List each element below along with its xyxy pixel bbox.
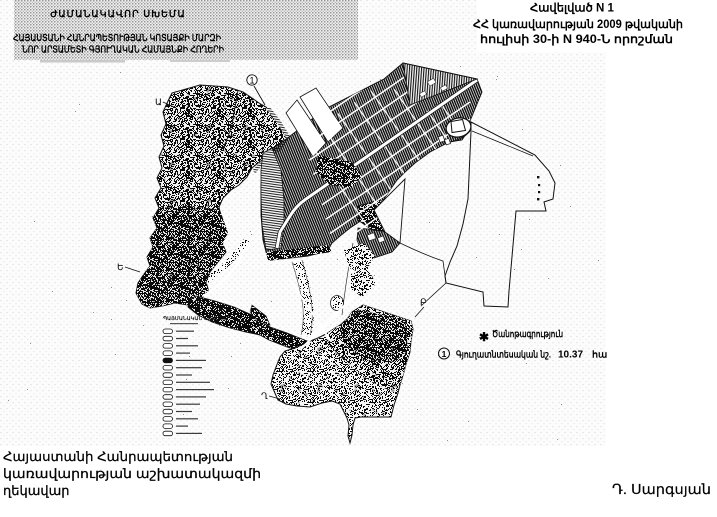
svg-text:հա: հա (592, 349, 608, 361)
svg-text:ղեկավար: ղեկավար (3, 483, 70, 498)
svg-text:Հայաստանի Հանրապետության: Հայաստանի Հանրապետության (3, 449, 233, 464)
svg-text:10.37: 10.37 (558, 350, 583, 361)
svg-text:Ծանոթագրություն: Ծանոթագրություն (492, 329, 563, 340)
svg-text:1: 1 (249, 76, 254, 86)
svg-text:Ե: Ե (117, 262, 124, 272)
svg-text:Բ: Բ (420, 297, 427, 307)
svg-text:ՀԱՅԱՍՏԱՆԻ ՀԱՆՐԱՊԵՏՈՒԹՅԱՆ ԿՈՏԱՅ: ՀԱՅԱՍՏԱՆԻ ՀԱՆՐԱՊԵՏՈՒԹՅԱՆ ԿՈՏԱՅՔԻ ՄԱՐԶԻ (13, 33, 221, 44)
svg-text:ԺԱՄԱՆԱԿԱՎՈՐ ՍԽԵՄԱ: ԺԱՄԱՆԱԿԱՎՈՐ ՍԽԵՄԱ (50, 9, 185, 20)
svg-text:ՀՀ կառավարության 2009 թվականի: ՀՀ կառավարության 2009 թվականի (473, 18, 683, 31)
svg-text:Ղ: Ղ (261, 391, 268, 401)
svg-text:հուլիսի 30-ի N 940-Ն որոշման: հուլիսի 30-ի N 940-Ն որոշման (480, 32, 673, 46)
svg-text:Ա: Ա (155, 97, 162, 107)
svg-text:1: 1 (442, 349, 447, 359)
svg-text:ՆՈՐ ԱՐՏԱՄԵՏԻ ԳՅՈՒՂԱԿԱՆ ՀԱՄԱՅՆՔ: ՆՈՐ ԱՐՏԱՄԵՏԻ ԳՅՈՒՂԱԿԱՆ ՀԱՄԱՅՆՔԻ ՀՈՂԵՐԻ (21, 45, 224, 56)
svg-text:Դ. Սարգսյան: Դ. Սարգսյան (612, 481, 711, 497)
svg-text:ՊԱՅՄԱՆԱԿԱՆ ՆՇԱՆՆԵՐ: ՊԱՅՄԱՆԱԿԱՆ ՆՇԱՆՆԵՐ (163, 316, 231, 322)
svg-text:Հավելված N 1: Հավելված N 1 (530, 2, 614, 15)
svg-text:✱: ✱ (479, 330, 489, 344)
svg-text:Գյուղատնտեսական նշ.: Գյուղատնտեսական նշ. (456, 350, 551, 361)
svg-text:կառավարության աշխատակազմի: կառավարության աշխատակազմի (3, 466, 261, 481)
